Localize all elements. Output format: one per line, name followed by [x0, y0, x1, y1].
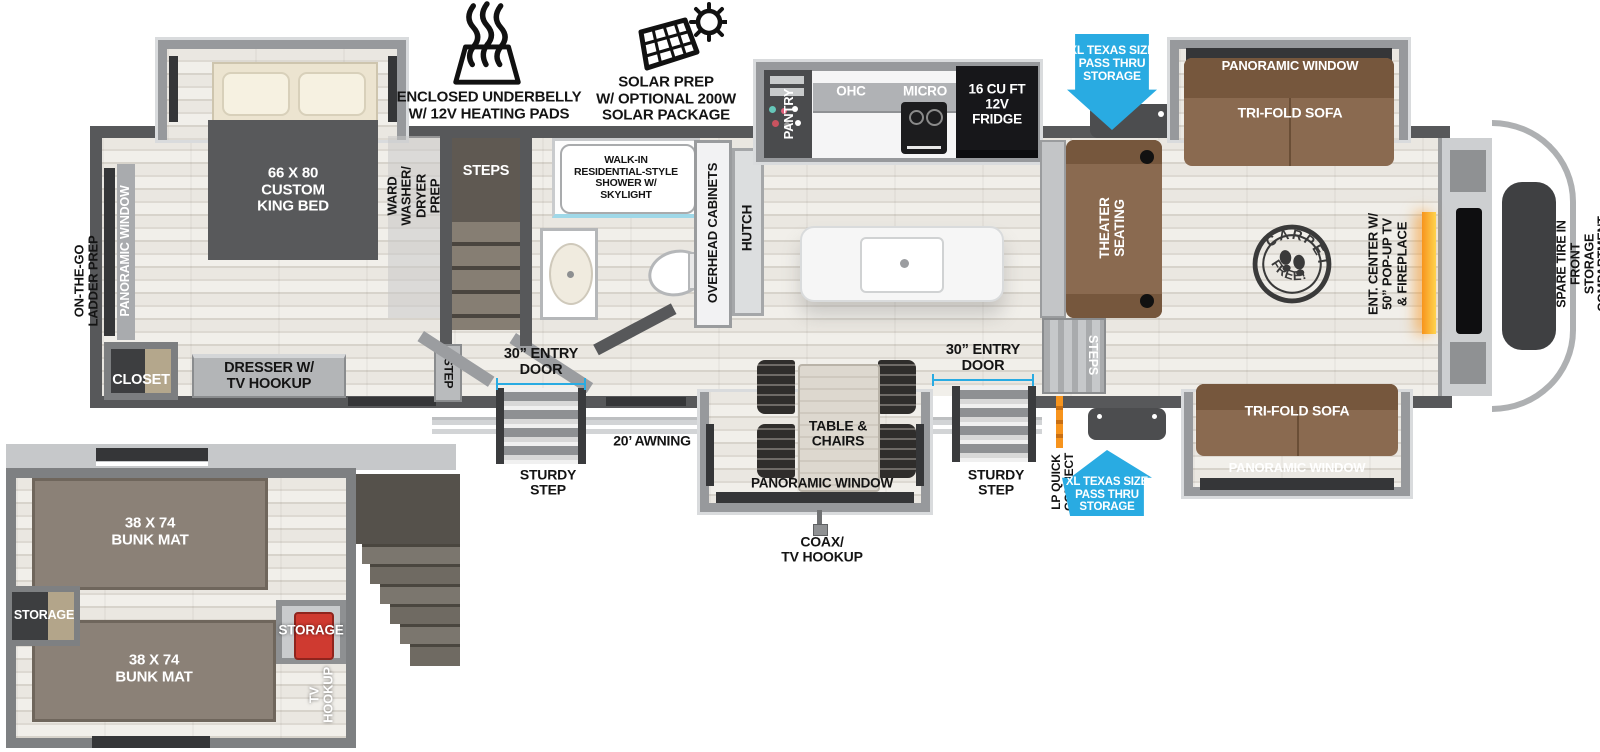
bath-stairs-treads — [452, 222, 520, 330]
door-rivet — [1158, 111, 1164, 117]
ent-center-cabinet — [1438, 138, 1492, 396]
bedroom-bottom-window — [348, 397, 436, 406]
door-rivet — [1152, 414, 1157, 419]
dinette-side-window — [706, 424, 714, 486]
fridge-label: 16 CU FT 12V FRIDGE — [969, 83, 1026, 128]
dresser-label: DRESSER W/ TV HOOKUP — [224, 361, 314, 393]
stove — [901, 102, 947, 154]
bath-steps-label: STEPS — [463, 164, 510, 180]
theater-cupholder — [1140, 294, 1154, 308]
entry-door-left-label: 30” ENTRY DOOR — [504, 347, 578, 379]
pass-thru-door-bottom — [1088, 408, 1166, 440]
bunk-roof-band — [6, 444, 456, 470]
fireplace-glow — [1422, 212, 1436, 334]
bath-vanity — [540, 228, 598, 320]
dinette-panoramic-label: PANORAMIC WINDOW — [751, 477, 893, 492]
entry-door-right-label: 30” ENTRY DOOR — [946, 343, 1020, 375]
mid-bottom-window — [606, 397, 686, 406]
bunk-mat-bottom-label: 38 X 74 BUNK MAT — [115, 653, 192, 686]
king-bed-label: 66 X 80 CUSTOM KING BED — [257, 165, 329, 215]
pantry-label: PANTRY — [782, 89, 796, 140]
pantry-slot — [770, 76, 804, 84]
island-faucet — [900, 259, 909, 268]
sturdy-step-left-label: STURDY STEP — [520, 468, 576, 499]
micro-label: MICRO — [903, 85, 947, 100]
bunk-stair-tread — [380, 584, 460, 604]
trifold-sofa-bottom — [1196, 384, 1398, 456]
bed-slide-window-left — [169, 56, 178, 122]
bedroom-panoramic-label: PANORAMIC WINDOW — [119, 185, 133, 316]
bottom-panoramic-label: PANORAMIC WINDOW — [1229, 461, 1366, 475]
measure-tick — [1032, 374, 1034, 386]
dinette-chair — [757, 424, 795, 478]
pillow — [222, 72, 290, 116]
dinette-side-window — [916, 424, 924, 486]
burner — [909, 110, 924, 125]
overhead-cabinets-label: OVERHEAD CABINETS — [706, 163, 720, 303]
solar-label: SOLAR PREP W/ OPTIONAL 200W SOLAR PACKAG… — [596, 74, 736, 124]
bunk-mat-top-label: 38 X 74 BUNK MAT — [111, 516, 188, 549]
ward-area — [388, 136, 440, 318]
top-panoramic-label: PANORAMIC WINDOW — [1222, 59, 1359, 73]
bottom-slide-window — [1200, 478, 1394, 490]
bath-partition — [520, 138, 532, 346]
bunk-storage-left-label: STORAGE — [14, 609, 74, 623]
bunk-stair-tread — [370, 564, 460, 584]
pantry-dot — [772, 120, 779, 127]
coax-label: COAX/ TV HOOKUP — [781, 535, 862, 566]
bunk-vent-top — [96, 448, 208, 461]
bath-faucet — [567, 271, 574, 278]
trifold-bottom-label: TRI-FOLD SOFA — [1245, 403, 1350, 418]
hutch-label: HUTCH — [741, 205, 756, 251]
ent-cabinet-box — [1450, 342, 1486, 384]
heating-pads-icon — [446, 0, 528, 88]
shower-label: WALK-IN RESIDENTIAL-STYLE SHOWER W/ SKYL… — [574, 155, 678, 201]
living-steps-label: STEPS — [1085, 335, 1099, 375]
bunk-stairs — [356, 474, 460, 666]
ent-cabinet-box — [1450, 150, 1486, 192]
awning-label: 20’ AWNING — [613, 433, 691, 448]
ward-label: WARD WASHER/ DRYER PREP — [385, 166, 442, 225]
bunk-stair-tread — [362, 544, 460, 564]
pass-thru-bottom-label: XL TEXAS SIZE PASS THRU STORAGE — [1062, 476, 1152, 514]
ladder-prep-label: ON-THE-GO LADDER PREP — [73, 236, 102, 327]
pantry-dot — [769, 106, 776, 113]
burner — [926, 109, 943, 126]
door-rivet — [1097, 414, 1102, 419]
dinette-chair — [878, 424, 916, 478]
entry-measure-left — [496, 383, 586, 385]
sturdy-step-right-label: STURDY STEP — [968, 468, 1024, 499]
measure-tick — [932, 374, 934, 386]
dinette-window — [716, 492, 914, 503]
bottom-wall-front — [1408, 396, 1452, 408]
measure-tick — [584, 378, 586, 390]
trifold-top-label: TRI-FOLD SOFA — [1238, 105, 1343, 120]
bunk-stair-tread — [410, 644, 460, 666]
bunk-stair-tread — [400, 624, 460, 644]
measure-tick — [496, 378, 498, 390]
popup-tv — [1456, 208, 1482, 334]
lp-quick-connect-rod — [1056, 396, 1063, 448]
rv-floorplan: 20’ AWNING 66 X 80 CUSTOM KING BED WARD … — [0, 0, 1600, 752]
closet — [104, 342, 178, 400]
theater-label: THEATER SEATING — [1098, 197, 1128, 258]
spare-tire-compartment — [1502, 182, 1556, 350]
bunk-stair-tread — [390, 604, 460, 624]
dinette-label: TABLE & CHAIRS — [809, 419, 867, 450]
ent-center-label: ENT. CENTER W/ 50” POP-UP TV & FIREPLACE — [1367, 213, 1410, 315]
spare-tire-label: SPARE TIRE IN FRONT STORAGE COMPARTMENT — [1556, 216, 1600, 311]
entry-measure-right — [932, 379, 1034, 381]
dinette-chair — [878, 360, 916, 414]
pillow — [298, 72, 366, 116]
closet-label: CLOSET — [112, 373, 170, 389]
underbelly-label: ENCLOSED UNDERBELLY W/ 12V HEATING PADS — [397, 90, 582, 123]
bedroom-rear-window — [104, 168, 115, 336]
sturdy-step-right — [952, 386, 1036, 462]
bed-mattress-head — [212, 62, 378, 124]
bunk-vent-bottom — [92, 736, 210, 748]
bunk-tv-hookup-label: TV HOOKUP — [308, 667, 337, 723]
bedroom-partition — [440, 138, 452, 346]
ohc-label: OHC — [836, 85, 865, 100]
bunk-stair-landing — [356, 474, 460, 544]
kitchen-island — [800, 226, 1004, 302]
sturdy-step-left — [496, 388, 586, 464]
theater-back-cabinet — [1040, 140, 1066, 318]
dinette-chair — [757, 360, 795, 414]
pass-thru-top-label: XL TEXAS SIZE PASS THRU STORAGE — [1067, 44, 1157, 84]
theater-cupholder — [1140, 150, 1154, 164]
stove-handle — [907, 146, 941, 149]
solar-prep-icon — [633, 2, 727, 72]
bunk-vent-trim — [96, 462, 208, 466]
bunk-storage-right-label: STORAGE — [278, 624, 343, 639]
